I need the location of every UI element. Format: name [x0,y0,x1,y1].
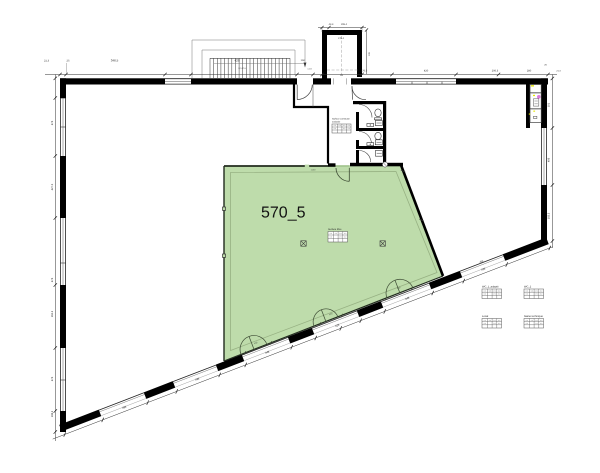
svg-text:420: 420 [424,70,429,73]
svg-text:101: 101 [368,51,371,56]
svg-text:sanitaire: sanitaire [332,120,341,123]
svg-text:346.5: 346.5 [111,59,119,63]
svg-text:WC_2: WC_2 [524,285,532,288]
svg-text:Local: Local [482,315,489,318]
svg-text:276.5: 276.5 [361,70,368,73]
svg-text:103.3: 103.3 [547,212,550,219]
svg-text:192.2: 192.2 [51,310,54,317]
svg-text:427.5: 427.5 [51,183,54,190]
svg-text:420: 420 [234,59,239,63]
svg-text:276.4: 276.4 [338,37,345,40]
svg-text:101: 101 [547,102,550,107]
svg-text:206.4: 206.4 [341,23,348,26]
svg-text:406: 406 [547,157,550,162]
svg-text:476: 476 [51,277,54,282]
svg-text:WC_1_adapté: WC_1_adapté [482,285,499,288]
svg-text:17x17.6: 17x17.6 [238,67,247,70]
svg-text:206.3: 206.3 [492,70,499,73]
svg-text:476: 476 [51,376,54,381]
svg-text:108.2: 108.2 [51,410,54,417]
svg-text:280: 280 [527,70,532,73]
svg-text:43.3: 43.3 [329,23,334,26]
svg-text:1140: 1140 [311,169,316,172]
svg-text:Surface commune: Surface commune [332,117,351,120]
svg-text:Gaine technique: Gaine technique [524,315,543,318]
svg-text:Surface libre: Surface libre [328,228,342,231]
svg-text:570_5: 570_5 [261,204,306,221]
svg-text:476: 476 [51,120,54,125]
svg-text:21.3: 21.3 [44,60,50,63]
svg-text:118: 118 [301,59,305,62]
